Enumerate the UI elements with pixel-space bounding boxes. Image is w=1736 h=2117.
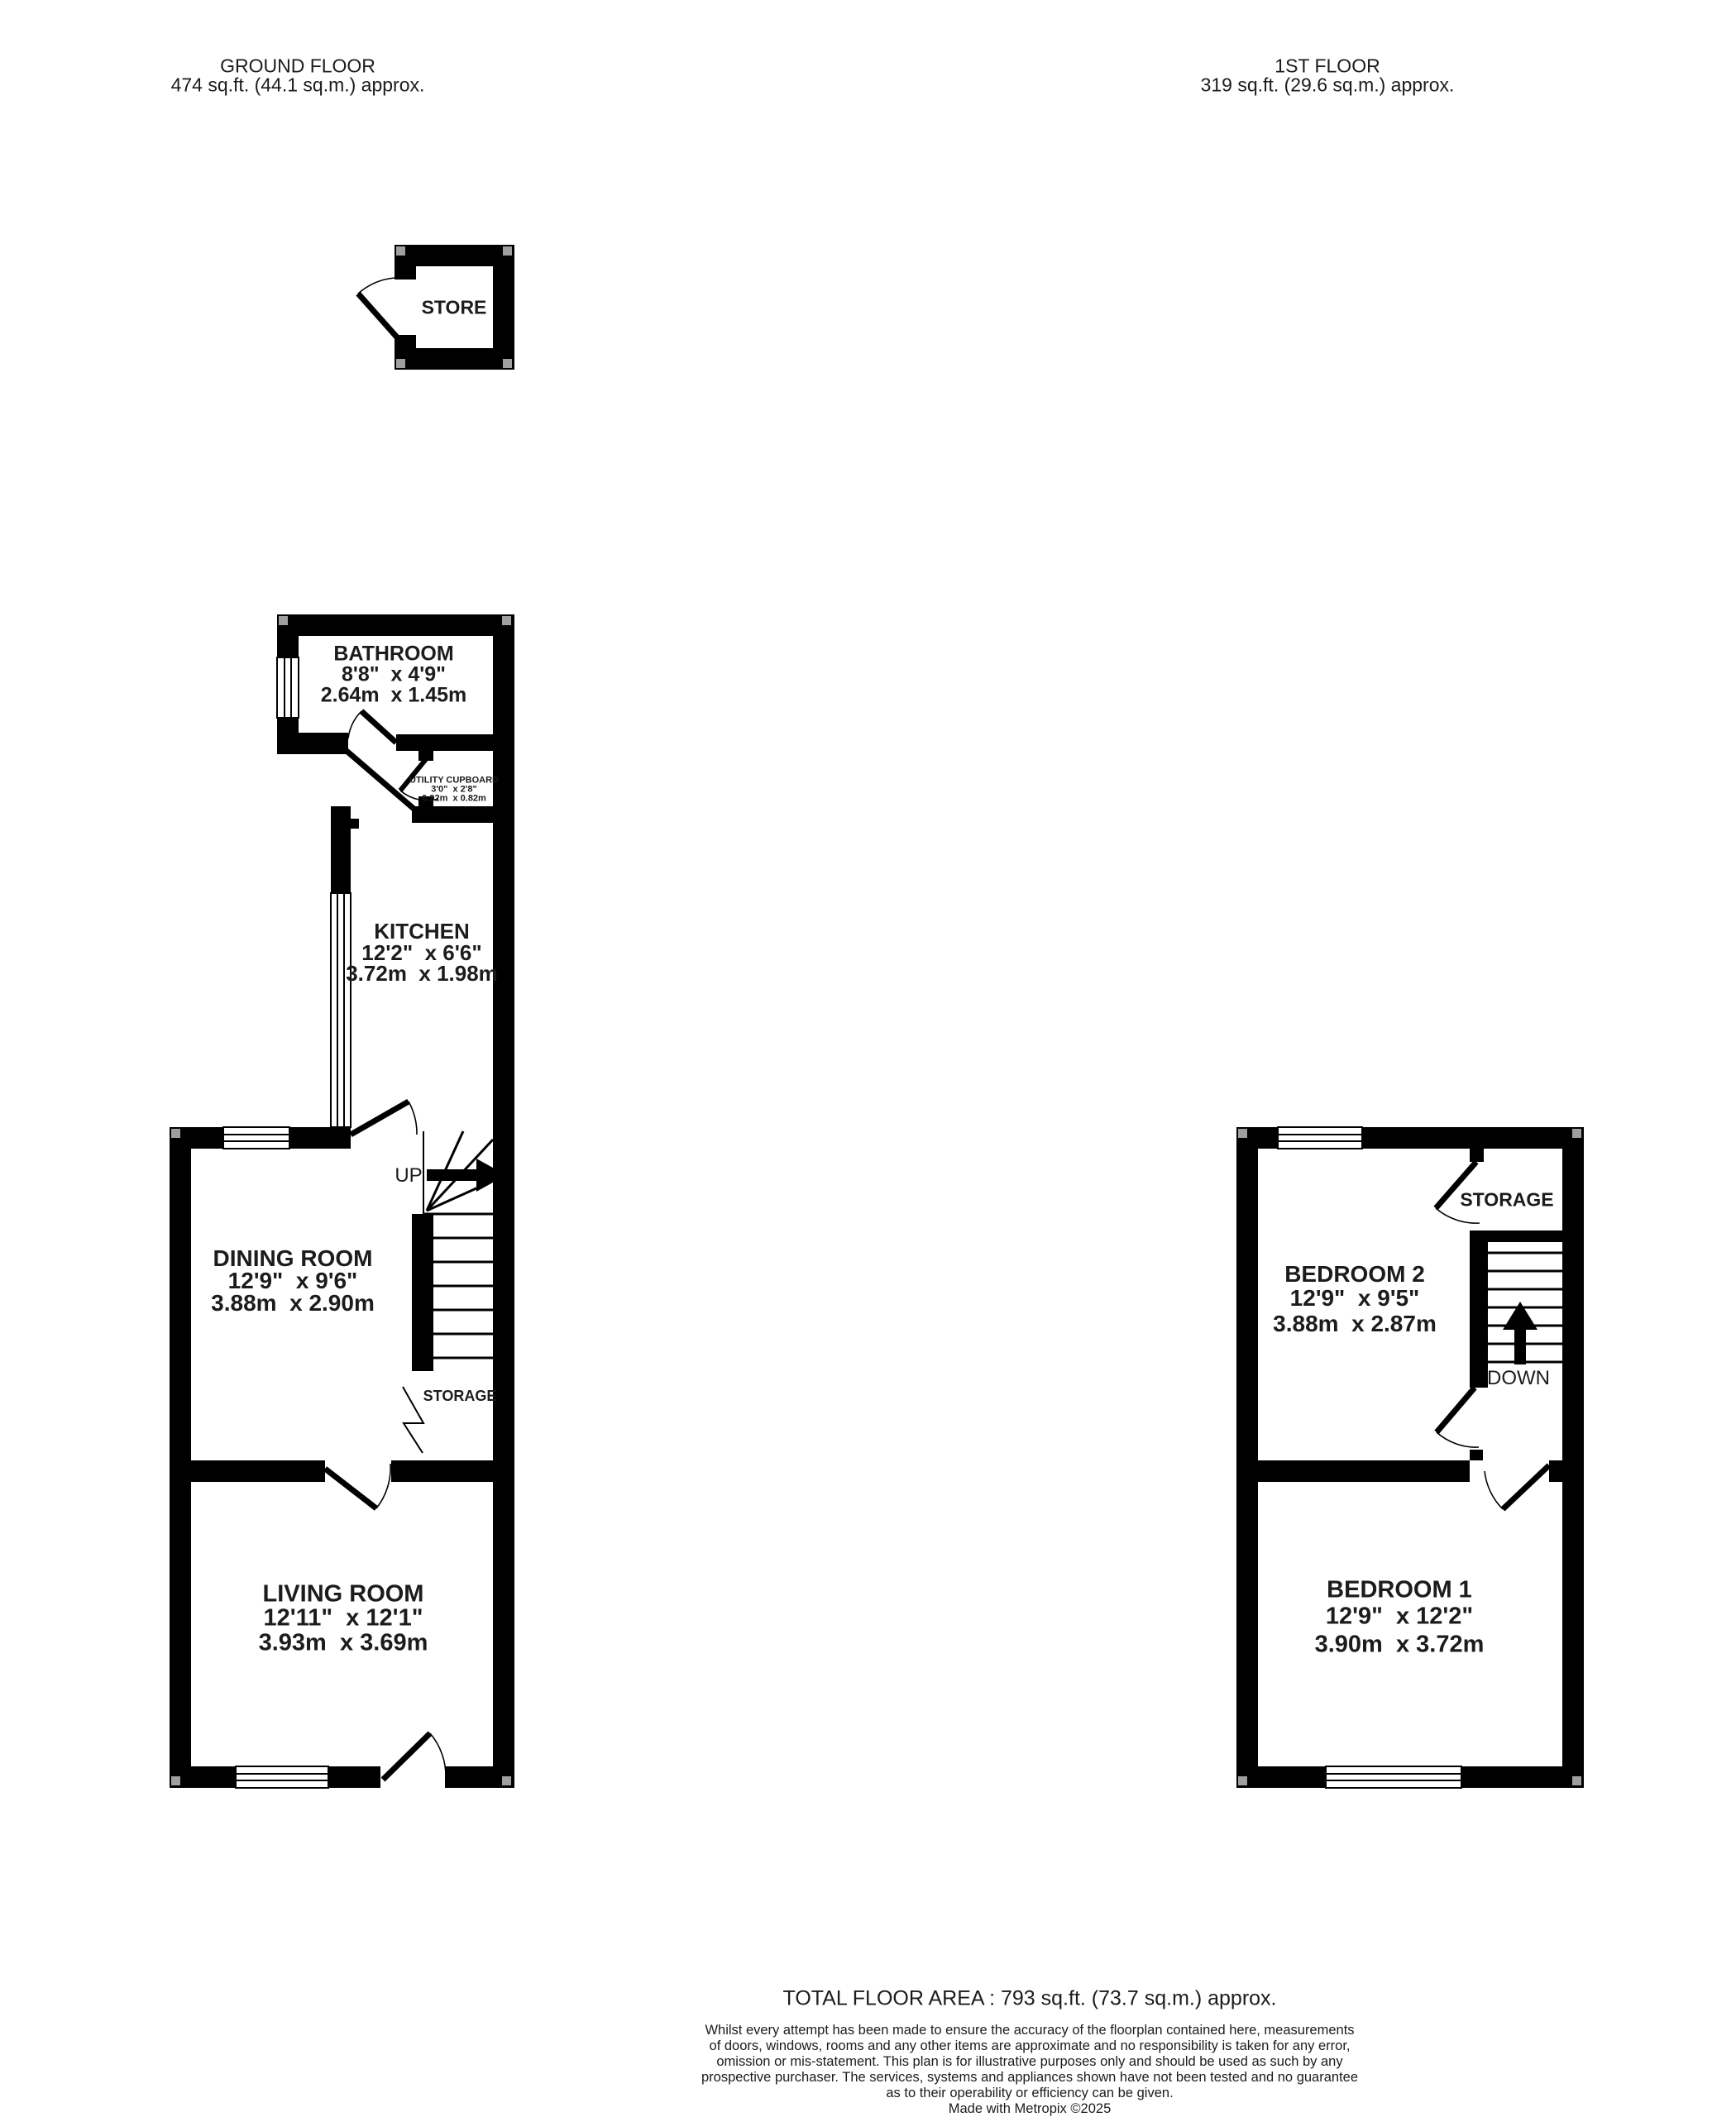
- ground-floor-area: 474 sq.ft. (44.1 sq.m.) approx.: [171, 76, 425, 95]
- ground-floor-title: GROUND FLOOR: [220, 57, 375, 76]
- bedroom1-door: [1485, 1465, 1549, 1509]
- room-label-bedroom2: BEDROOM 2: [1284, 1263, 1425, 1286]
- disclaimer-line: omission or mis-statement. This plan is …: [716, 2055, 1342, 2069]
- disclaimer-line: prospective purchaser. The services, sys…: [701, 2071, 1358, 2085]
- room-dims-imperial-bedroom2: 12'9" x 9'5": [1290, 1287, 1420, 1310]
- bedroom1-window: [1326, 1766, 1461, 1788]
- room-dims-imperial-living-room: 12'11" x 12'1": [264, 1607, 423, 1631]
- disclaimer-line: of doors, windows, rooms and any other i…: [710, 2039, 1351, 2053]
- room-label-bathroom: BATHROOM: [333, 644, 453, 665]
- room-dims-metric-bedroom1: 3.90m x 3.72m: [1315, 1633, 1485, 1657]
- living-room-window: [236, 1766, 328, 1788]
- corner-marks: [171, 246, 1581, 1785]
- room-dims-imperial-dining-room: 12'9" x 9'6": [228, 1269, 358, 1293]
- storage-first-floor-label: STORAGE: [1460, 1191, 1553, 1210]
- room-dims-metric-bedroom2: 3.88m x 2.87m: [1273, 1312, 1437, 1336]
- down-arrow-icon: [1503, 1302, 1538, 1364]
- stairs-down: [1488, 1253, 1562, 1364]
- room-label-bedroom1: BEDROOM 1: [1327, 1579, 1472, 1603]
- store-door: [358, 278, 398, 338]
- kitchen-door: [351, 1102, 417, 1135]
- room-label-dining-room: DINING ROOM: [213, 1247, 373, 1270]
- stairs-up-label: UP: [395, 1166, 422, 1186]
- room-dims-metric-dining-room: 3.88m x 2.90m: [211, 1292, 375, 1315]
- living-room-entry-door: [383, 1733, 446, 1780]
- first-floor-walls: [1236, 1127, 1584, 1788]
- bathroom-door: [348, 711, 396, 743]
- first-floor-area: 319 sq.ft. (29.6 sq.m.) approx.: [1201, 76, 1455, 95]
- stairs-down-label: DOWN: [1487, 1369, 1550, 1388]
- room-dims-imperial-bathroom: 8'8" x 4'9": [342, 665, 446, 686]
- under-stairs-break-line: [403, 1387, 423, 1453]
- floorplan-page: GROUND FLOOR 474 sq.ft. (44.1 sq.m.) app…: [0, 0, 1736, 2117]
- total-floor-area: TOTAL FLOOR AREA : 793 sq.ft. (73.7 sq.m…: [783, 1989, 1277, 2009]
- room-dims-metric-kitchen: 3.72m x 1.98m: [346, 963, 498, 984]
- room-label-store: STORE: [422, 299, 487, 318]
- room-label-living-room: LIVING ROOM: [263, 1583, 424, 1607]
- first-floor-title: 1ST FLOOR: [1275, 57, 1380, 76]
- stairs-landing-door: [1437, 1388, 1479, 1447]
- kitchen-window: [331, 893, 351, 1127]
- room-dims-metric-bathroom: 2.64m x 1.45m: [321, 686, 467, 706]
- room-dims-imperial-bedroom1: 12'9" x 12'2": [1326, 1605, 1473, 1629]
- dining-living-door: [325, 1464, 390, 1508]
- storage-under-stairs-label: STORAGE: [423, 1388, 497, 1403]
- disclaimer-line: as to their operability or efficiency ca…: [886, 2086, 1173, 2100]
- disclaimer-line: Whilst every attempt has been made to en…: [705, 2024, 1354, 2038]
- metropix-credit: Made with Metropix ©2025: [949, 2102, 1112, 2116]
- first-floor-doors: [1436, 1162, 1549, 1509]
- bedroom2-window: [1278, 1127, 1362, 1149]
- room-label-kitchen: KITCHEN: [374, 920, 470, 942]
- room-dims-metric-living-room: 3.93m x 3.69m: [259, 1632, 428, 1656]
- first-floor-windows: [1278, 1127, 1461, 1788]
- floorplan-drawing: [0, 0, 1736, 2117]
- dining-room-window: [223, 1127, 289, 1149]
- bathroom-window: [277, 657, 299, 718]
- room-dims-metric-utility-cupboard: 0.92m x 0.82m: [422, 795, 486, 804]
